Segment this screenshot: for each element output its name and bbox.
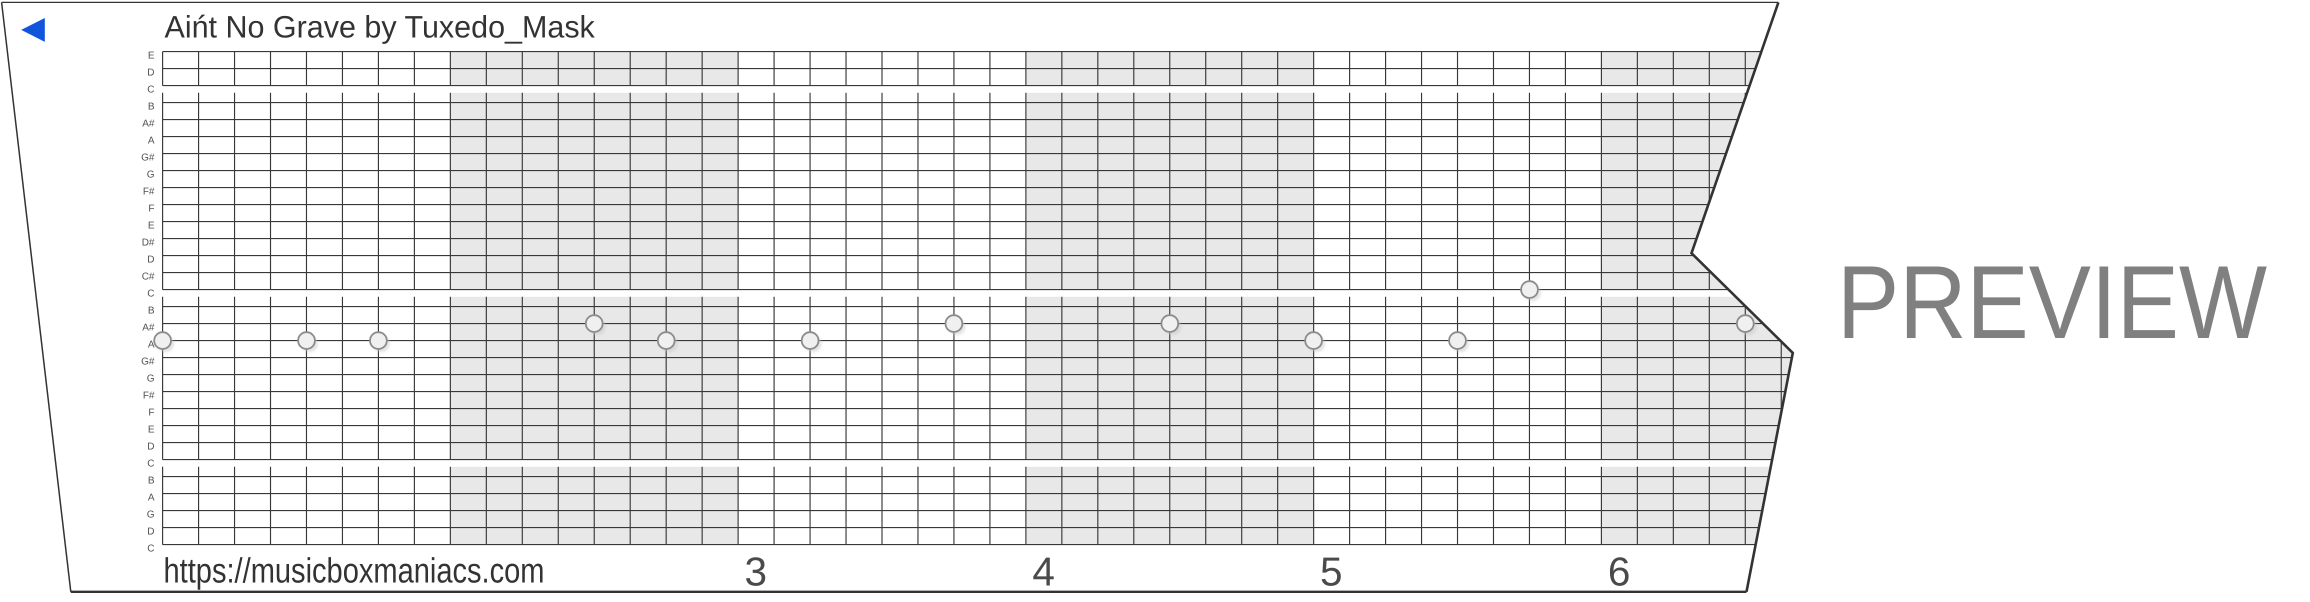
- svg-text:B: B: [148, 475, 155, 486]
- svg-text:4: 4: [1032, 549, 1055, 595]
- svg-text:A#: A#: [142, 118, 155, 129]
- svg-text:3: 3: [745, 549, 768, 595]
- svg-text:E: E: [148, 50, 155, 61]
- svg-text:D#: D#: [142, 237, 155, 248]
- svg-text:F#: F#: [143, 186, 155, 197]
- svg-text:Aińt No Grave by Tuxedo_Mask: Aińt No Grave by Tuxedo_Mask: [165, 10, 596, 45]
- svg-text:F#: F#: [143, 390, 155, 401]
- svg-text:6: 6: [1608, 549, 1631, 595]
- svg-text:G: G: [147, 373, 155, 384]
- svg-text:C: C: [147, 458, 154, 469]
- svg-text:C: C: [147, 84, 154, 95]
- svg-text:https://musicboxmaniacs.com: https://musicboxmaniacs.com: [164, 552, 545, 591]
- svg-text:B: B: [148, 305, 155, 316]
- svg-text:F: F: [148, 407, 154, 418]
- svg-text:D: D: [147, 254, 154, 265]
- svg-text:D: D: [147, 526, 154, 537]
- svg-text:E: E: [148, 220, 155, 231]
- svg-text:A: A: [148, 135, 155, 146]
- svg-text:E: E: [148, 424, 155, 435]
- svg-text:G: G: [147, 509, 155, 520]
- svg-text:A: A: [148, 492, 155, 503]
- svg-text:A#: A#: [142, 322, 155, 333]
- svg-text:D: D: [147, 441, 154, 452]
- svg-text:C: C: [147, 543, 154, 554]
- svg-text:G: G: [147, 169, 155, 180]
- svg-text:C#: C#: [142, 271, 155, 282]
- svg-text:B: B: [148, 101, 155, 112]
- svg-text:G#: G#: [141, 152, 155, 163]
- svg-text:5: 5: [1320, 549, 1343, 595]
- svg-text:C: C: [147, 288, 154, 299]
- svg-text:F: F: [148, 203, 154, 214]
- svg-text:PREVIEW: PREVIEW: [1837, 245, 2267, 361]
- svg-text:G#: G#: [141, 356, 155, 367]
- svg-text:D: D: [147, 67, 154, 78]
- svg-text:A: A: [148, 339, 155, 350]
